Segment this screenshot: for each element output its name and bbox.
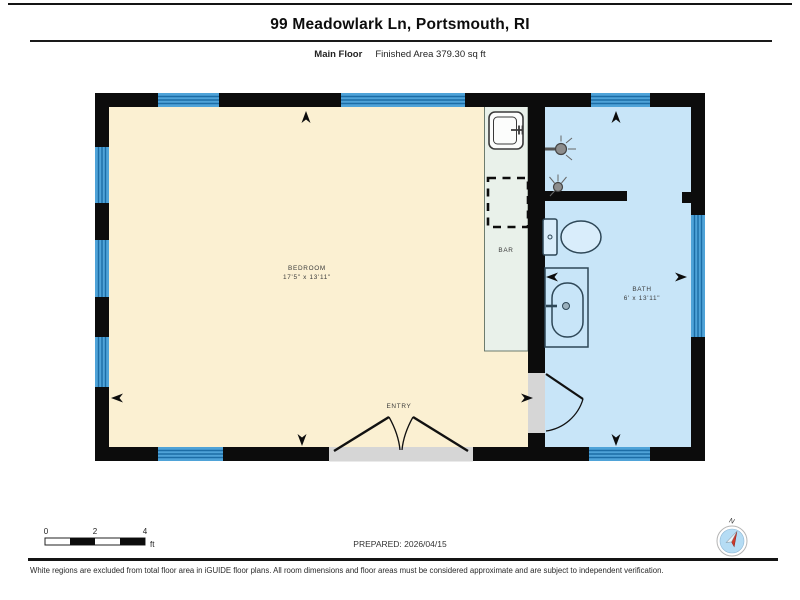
prepared-date: PREPARED: 2026/04/15 bbox=[0, 539, 800, 549]
window bbox=[591, 93, 650, 107]
compass-north-label: N bbox=[728, 517, 736, 526]
wall-bath-interior bbox=[545, 191, 627, 201]
entry-threshold bbox=[329, 447, 473, 462]
bedroom-dimensions: 17'5" x 13'11" bbox=[283, 274, 331, 281]
scale-tick-4: 4 bbox=[143, 527, 148, 536]
compass-icon: N bbox=[717, 517, 747, 556]
bath-dimensions: 6' x 13'11" bbox=[624, 295, 660, 302]
window bbox=[589, 447, 650, 461]
room-fills bbox=[109, 107, 691, 448]
disclaimer-text: White regions are excluded from total fl… bbox=[30, 566, 770, 575]
window bbox=[341, 93, 465, 107]
bath-floor bbox=[545, 107, 691, 447]
entry-label: ENTRY bbox=[386, 403, 411, 410]
wall-bath-partition-stub bbox=[528, 433, 545, 447]
bar-sink bbox=[489, 112, 523, 149]
wall-right-return bbox=[682, 192, 691, 203]
toilet-icon bbox=[543, 219, 601, 255]
scale-tick-2: 2 bbox=[93, 527, 98, 536]
bar-label: BAR bbox=[498, 247, 513, 254]
footer-divider bbox=[28, 558, 778, 561]
bedroom-label: BEDROOM bbox=[288, 265, 326, 272]
scale-tick-0: 0 bbox=[44, 527, 49, 536]
window bbox=[95, 240, 109, 297]
window bbox=[158, 93, 219, 107]
floor-plan: BEDROOM 17'5" x 13'11" BAR BATH 6' x 13'… bbox=[0, 0, 800, 600]
window bbox=[158, 447, 223, 461]
window bbox=[691, 215, 705, 337]
window bbox=[95, 337, 109, 387]
window bbox=[95, 147, 109, 203]
bath-door-threshold bbox=[528, 373, 545, 433]
bath-label: BATH bbox=[632, 286, 651, 293]
